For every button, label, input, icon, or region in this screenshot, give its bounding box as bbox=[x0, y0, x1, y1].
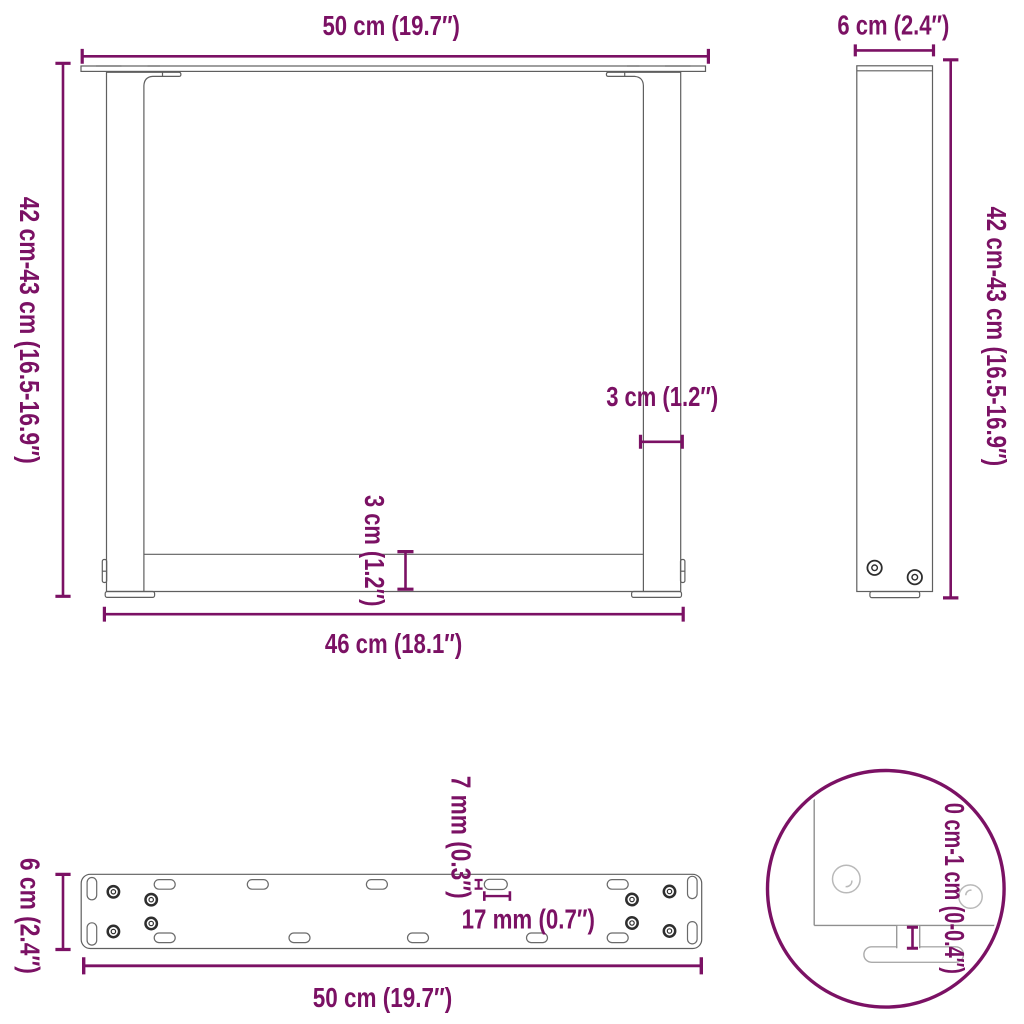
svg-text:50 cm (19.7″): 50 cm (19.7″) bbox=[322, 10, 460, 41]
svg-text:3 cm (1.2″): 3 cm (1.2″) bbox=[606, 381, 718, 412]
svg-text:46 cm (18.1″): 46 cm (18.1″) bbox=[325, 628, 462, 659]
svg-text:0 cm-1 cm (0-0.4″): 0 cm-1 cm (0-0.4″) bbox=[939, 803, 970, 974]
svg-text:42 cm-43 cm (16.5-16.9″): 42 cm-43 cm (16.5-16.9″) bbox=[14, 197, 45, 464]
svg-text:6 cm (2.4″): 6 cm (2.4″) bbox=[15, 858, 46, 974]
svg-text:3 cm (1.2″): 3 cm (1.2″) bbox=[359, 495, 390, 607]
svg-text:17 mm (0.7″): 17 mm (0.7″) bbox=[462, 904, 595, 935]
svg-text:7 mm (0.3″): 7 mm (0.3″) bbox=[446, 776, 477, 899]
svg-text:6 cm (2.4″): 6 cm (2.4″) bbox=[837, 10, 949, 41]
svg-text:42 cm-43 cm (16.5-16.9″): 42 cm-43 cm (16.5-16.9″) bbox=[981, 206, 1012, 466]
svg-text:50 cm (19.7″): 50 cm (19.7″) bbox=[313, 982, 453, 1013]
